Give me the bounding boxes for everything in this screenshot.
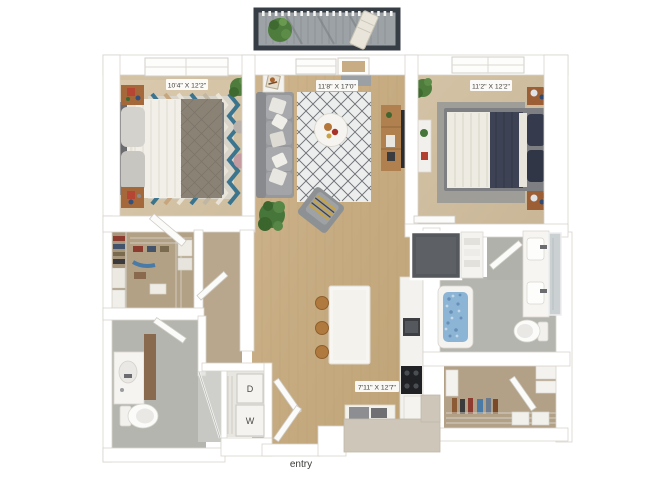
svg-text:11'8" X 17'0": 11'8" X 17'0" [318,84,356,91]
svg-text:entry: entry [290,459,312,470]
svg-text:D: D [247,384,254,394]
svg-text:7'11" X 12'7": 7'11" X 12'7" [358,385,396,392]
svg-text:11'2" X 12'2": 11'2" X 12'2" [472,84,510,91]
svg-text:W: W [246,416,255,426]
svg-text:10'4" X 12'2": 10'4" X 12'2" [168,83,207,90]
